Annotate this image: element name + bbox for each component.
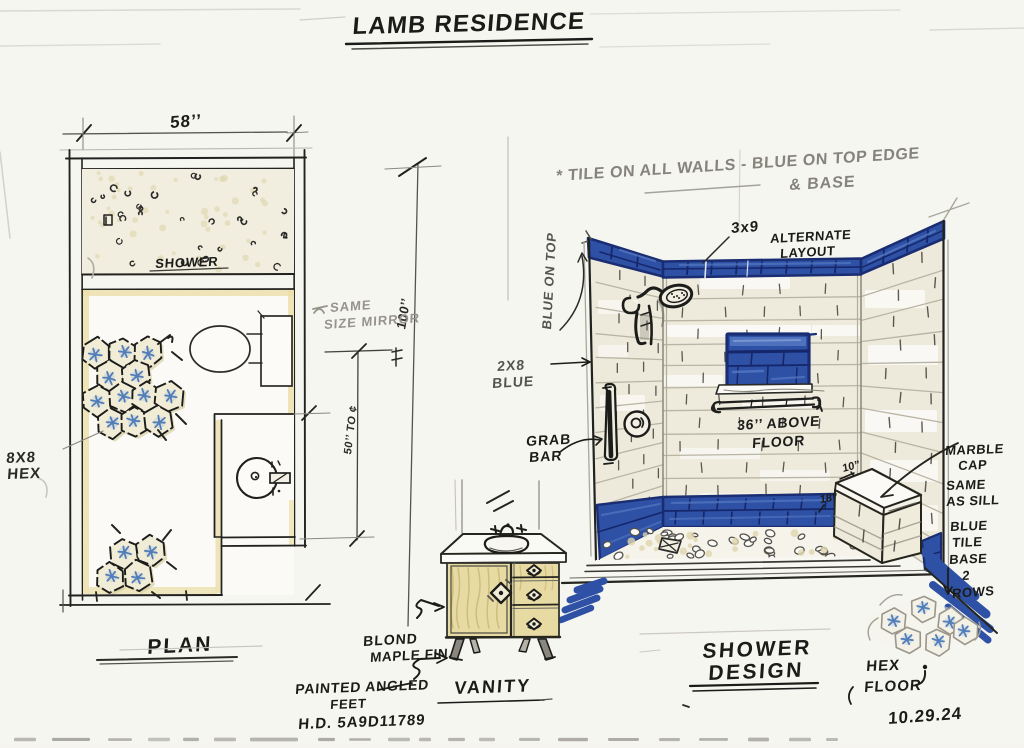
svg-text:AS SILL: AS SILL [946, 492, 1000, 509]
svg-text:ROWS: ROWS [952, 583, 995, 601]
svg-text:MARBLE: MARBLE [945, 441, 1005, 458]
svg-text:DESIGN: DESIGN [708, 659, 805, 685]
svg-text:58’’: 58’’ [170, 111, 202, 132]
svg-text:BLUE: BLUE [492, 373, 535, 391]
svg-text:VANITY: VANITY [454, 675, 532, 698]
svg-text:FLOOR: FLOOR [864, 677, 923, 696]
svg-text:LAMB RESIDENCE: LAMB RESIDENCE [352, 8, 587, 40]
svg-text:FLOOR: FLOOR [752, 432, 806, 451]
svg-text:& BASE: & BASE [789, 173, 856, 195]
svg-text:HEX: HEX [7, 465, 42, 483]
svg-text:BLUE: BLUE [950, 518, 988, 534]
svg-text:LAYOUT: LAYOUT [780, 243, 836, 261]
svg-text:18”: 18” [820, 492, 838, 506]
svg-text:2: 2 [962, 568, 971, 583]
svg-text:TILE: TILE [952, 534, 983, 550]
svg-text:SAME: SAME [946, 477, 987, 493]
svg-text:PLAN: PLAN [147, 633, 213, 659]
svg-text:CAP: CAP [958, 457, 988, 473]
svg-text:BAR: BAR [529, 447, 563, 465]
svg-text:GRAB: GRAB [526, 431, 572, 449]
svg-text:SAME: SAME [330, 297, 372, 315]
svg-text:FEET: FEET [330, 696, 367, 712]
svg-text:BLOND: BLOND [363, 630, 418, 649]
svg-text:BASE: BASE [949, 551, 988, 567]
svg-text:HEX: HEX [866, 657, 901, 675]
svg-text:3x9: 3x9 [731, 218, 760, 237]
svg-text:2X8: 2X8 [497, 357, 526, 374]
